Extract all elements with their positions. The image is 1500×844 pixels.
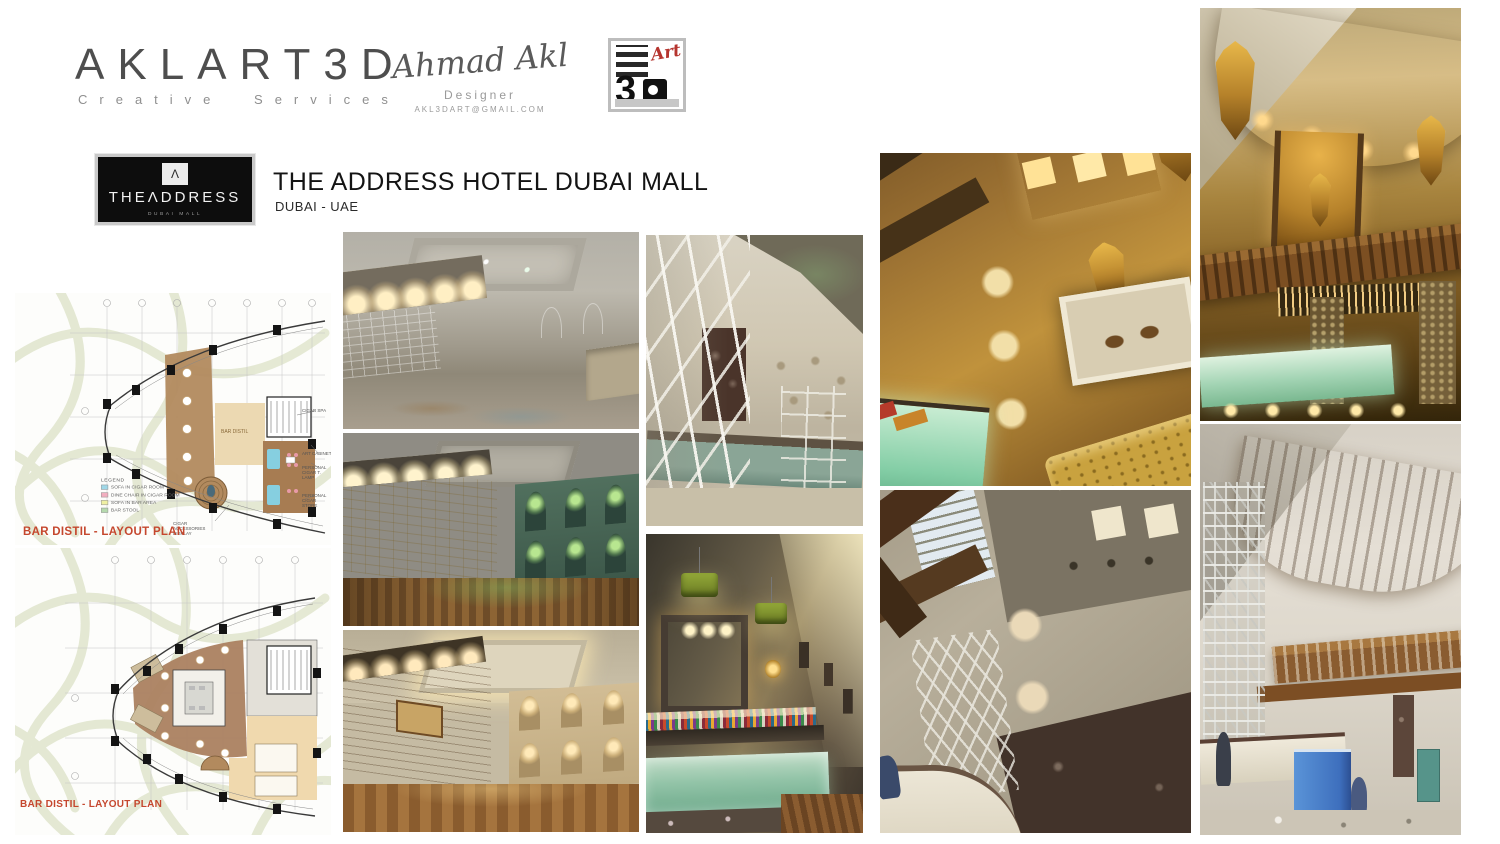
- shelving-grid: [343, 306, 441, 379]
- photo-cigar-room-render-green: [343, 433, 639, 626]
- arch-niche: [525, 540, 546, 581]
- photo-cigar-room-render-warm: [343, 630, 639, 832]
- worker-figure: [1216, 732, 1232, 785]
- legend-swatch-yellow: [101, 500, 108, 505]
- lit-ceiling-squares: [1009, 153, 1161, 219]
- wood-floor: [343, 784, 639, 832]
- legend-label: SOFA IN CIGAR ROOM: [111, 484, 164, 490]
- scaffold-tower: [1203, 482, 1266, 761]
- arabic-lantern: [1417, 115, 1446, 185]
- page-title: THE ADDRESS HOTEL DUBAI MALL: [273, 168, 708, 197]
- plan-b-drawing: [15, 548, 331, 835]
- photo-grand-hall-render: [1200, 8, 1461, 421]
- wall-sconce: [765, 660, 780, 678]
- designer-email: AKL3DART@GMAIL.COM: [375, 105, 585, 114]
- wood-floor: [781, 794, 863, 833]
- legend-item: DINE CHAIR IN CIGAR ROOM: [101, 492, 180, 498]
- arch-niche: [603, 736, 624, 772]
- photo-lounge-render-tilted: [880, 153, 1191, 486]
- brand-logo-text: AKLART3D: [75, 40, 406, 90]
- plan-legend: LEGEND SOFA IN CIGAR ROOM DINE CHAIR IN …: [101, 477, 180, 515]
- scaffold-frame-small: [781, 386, 846, 502]
- arch-niche: [561, 692, 582, 728]
- arch-niche: [583, 303, 604, 335]
- tilted-scene: [880, 153, 1191, 486]
- arch-niche: [564, 537, 585, 578]
- legend-swatch-green: [101, 508, 108, 513]
- legend-title: LEGEND: [101, 477, 180, 483]
- unfinished-floor: [343, 388, 639, 429]
- designer-signature: Ahmad Akl: [374, 35, 586, 88]
- arch-niche: [604, 533, 625, 574]
- legend-item: SOFA IN CIGAR ROOM: [101, 484, 180, 490]
- legend-item: SOFA IN BAR AREA: [101, 500, 180, 506]
- photo-bar-render-bottles: [646, 534, 863, 833]
- arch-niche: [541, 307, 562, 339]
- scaffold-tower: [646, 235, 750, 526]
- teal-locker: [1417, 749, 1440, 802]
- legend-label: BAR STOOL: [111, 507, 139, 513]
- debris-floor: [1200, 810, 1461, 835]
- marble-pillar: [1393, 695, 1414, 777]
- legend-swatch-blue: [101, 484, 108, 489]
- plan-annotation: ART CABINET: [302, 451, 331, 456]
- green-glass-bar: [1200, 344, 1395, 407]
- floor-plan-bar-distil-lower: BAR DISTIL - LAYOUT PLAN: [15, 548, 331, 835]
- green-niche-wall: [515, 474, 639, 593]
- plan-annotation: PERSONAL CIGAR STORE: [302, 493, 330, 508]
- address-logo-subtext: DUBAI MALL: [127, 211, 222, 217]
- legend-swatch-pink: [101, 492, 108, 497]
- ceiling-with-skylights: [972, 490, 1191, 622]
- legend-label: SOFA IN BAR AREA: [111, 500, 156, 506]
- wall-light-band: [343, 255, 487, 316]
- blue-cabinet-box: [1294, 749, 1351, 819]
- wood-floor: [343, 578, 639, 626]
- photo-grand-hall-construction: [1200, 424, 1461, 835]
- floor-uplights: [1210, 400, 1419, 421]
- arch-niche: [525, 491, 546, 532]
- stone-pillar: [1419, 281, 1456, 405]
- arch-niche: [519, 741, 540, 777]
- arch-niche: [564, 487, 585, 528]
- worker-figure: [880, 754, 901, 800]
- amber-mosaic-panel: [661, 615, 748, 714]
- project-location: DUBAI - UAE: [275, 199, 359, 214]
- photo-lounge-construction-tilted: [880, 490, 1191, 833]
- address-logo-text: THEΛDDRESS: [98, 189, 252, 206]
- plan-b-label: BAR DISTIL - LAYOUT PLAN: [20, 799, 162, 810]
- photo-bar-construction-scaffold: [646, 235, 863, 526]
- photo-cigar-room-construction: [343, 232, 639, 429]
- arch-niche: [604, 484, 625, 525]
- green-pendant-lamp: [755, 603, 788, 624]
- portfolio-sheet: { "header": { "brand_name": "AKLART3D", …: [0, 0, 1500, 844]
- floor-plan-bar-distil-upper: BAR DISTIL LEGEND SOFA IN CIGAR ROOM DIN…: [15, 293, 331, 545]
- address-mark-icon: Λ: [162, 163, 188, 185]
- arch-niche: [603, 689, 624, 725]
- arch-niche: [519, 695, 540, 731]
- legend-label: DINE CHAIR IN CIGAR ROOM: [111, 492, 180, 498]
- camel-painting: [1059, 276, 1191, 385]
- akl3d-logo: 3 Art: [608, 38, 686, 112]
- plan-annotation: CIGAR SPA: [302, 408, 326, 413]
- debris-floor: [646, 488, 863, 526]
- wall-artwork: [396, 699, 443, 738]
- brand-tagline: Creative Services: [78, 92, 400, 107]
- plan-a-interior-label: BAR DISTIL: [221, 429, 248, 435]
- tilted-scene: [880, 490, 1191, 833]
- legend-item: BAR STOOL: [101, 507, 180, 513]
- tufted-gold-sofa: [1043, 394, 1191, 486]
- tan-niche-wall: [509, 682, 639, 792]
- logo-bottom-strip: [615, 99, 679, 107]
- designer-role: Designer: [375, 88, 585, 102]
- arch-niche: [561, 739, 582, 775]
- worker-figure: [1351, 777, 1367, 814]
- back-bar-bottle-glow: [1278, 282, 1425, 316]
- green-pendant-lamp: [681, 573, 718, 597]
- the-address-logo: Λ THEΛDDRESS DUBAI MALL: [95, 154, 255, 225]
- plan-annotation: PERSONAL CIGAR T. LAMP: [302, 465, 330, 480]
- logo-art-script: Art: [649, 41, 682, 66]
- plan-a-label: BAR DISTIL - LAYOUT PLAN: [23, 526, 185, 538]
